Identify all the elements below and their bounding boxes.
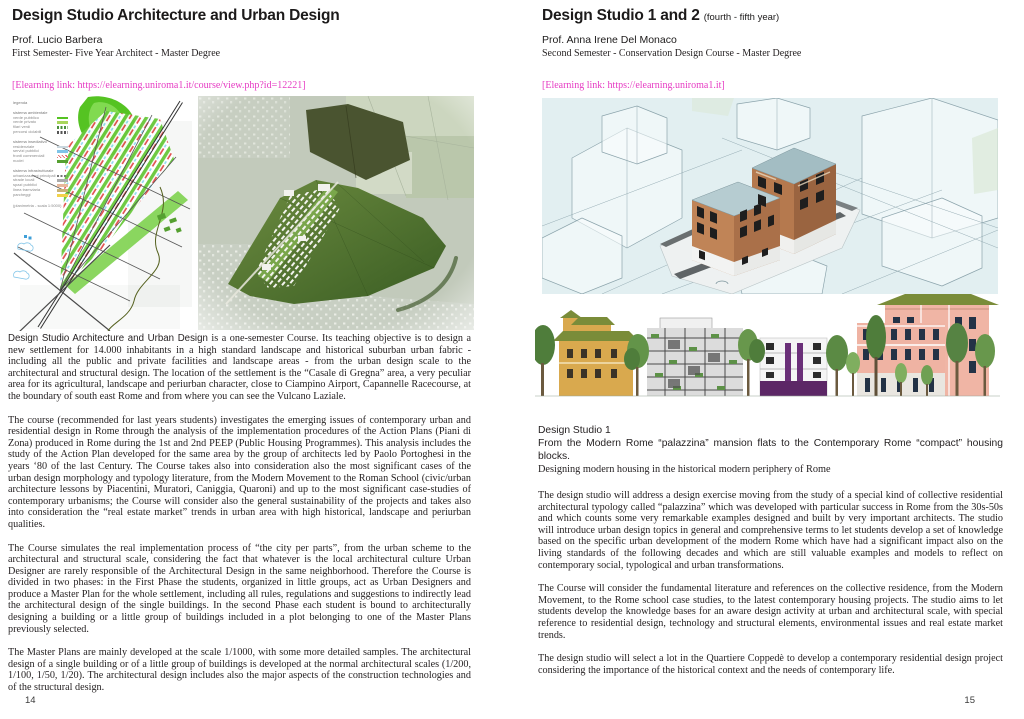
legend-swatch-icon (57, 184, 68, 187)
legend-swatch-icon (57, 175, 68, 178)
legend-swatch-icon (57, 131, 68, 134)
section-subtitle-1: From the Modern Rome “palazzina” mansion… (538, 437, 1003, 463)
street-elevation-strip (535, 293, 1000, 408)
legend-swatch-icon (57, 146, 68, 149)
left-elearning-link[interactable]: [Elearning link: https://elearning.uniro… (12, 80, 306, 91)
left-body-text: Design Studio Architecture and Urban Des… (8, 333, 471, 706)
legend-title: legenda (13, 101, 68, 106)
right-course-title-suffix: (fourth - fifth year) (704, 12, 780, 23)
left-paragraph-1-lead: Design Studio Architecture and Urban Des… (8, 333, 208, 344)
right-paragraph-3: The design studio will select a lot in t… (538, 653, 1003, 676)
right-professor: Prof. Anna Irene Del Monaco (542, 34, 1003, 46)
legend-item-label: percorsi ciclabili (13, 130, 41, 135)
right-body-text: Design Studio 1 From the Modern Rome “pa… (538, 424, 1003, 688)
left-paragraph-3: The Course simulates the real implementa… (8, 543, 471, 636)
left-paragraph-1: Design Studio Architecture and Urban Des… (8, 333, 471, 403)
legend-swatch-icon (57, 121, 68, 124)
legend-item: parcheggi (13, 193, 68, 198)
left-professor: Prof. Lucio Barbera (12, 34, 474, 46)
right-elearning-link[interactable]: [Elearning link: https://elearning.uniro… (542, 80, 725, 91)
right-course-title: Design Studio 1 and 2(fourth - fifth yea… (542, 7, 1003, 25)
right-paragraph-1: The design studio will address a design … (538, 490, 1003, 571)
legend-item-label: nuclei (13, 159, 23, 164)
section-heading: Design Studio 1 (538, 424, 1003, 437)
page-right: Design Studio 1 and 2(fourth - fifth yea… (538, 0, 1003, 719)
right-paragraph-2: The Course will consider the fundamental… (538, 583, 1003, 641)
legend-footer: (planimetria - scala 1:5000) (13, 204, 68, 209)
legend-swatch-icon (57, 194, 68, 197)
legend-swatch-icon (57, 117, 68, 120)
right-page-number: 15 (964, 695, 975, 706)
right-course-info: Second Semester - Conservation Design Co… (542, 48, 1003, 59)
legend-swatch-icon (57, 155, 68, 158)
left-figure-masterplan-aerial: legendasistema ambientaleverde pubblicov… (10, 95, 474, 331)
legend-swatch-icon (57, 189, 68, 192)
right-course-title-main: Design Studio 1 and 2 (542, 7, 700, 24)
page-left: Design Studio Architecture and Urban Des… (8, 0, 474, 719)
left-page-number: 14 (25, 695, 36, 706)
legend-item-label: parcheggi (13, 193, 31, 198)
section-subtitle-2: Designing modern housing in the historic… (538, 463, 1003, 476)
left-course-title: Design Studio Architecture and Urban Des… (12, 7, 474, 25)
masterplan-legend: legendasistema ambientaleverde pubblicov… (13, 101, 68, 208)
aerial-photo (198, 96, 474, 330)
right-figure-elevations (535, 293, 1000, 408)
right-figure-axonometric (542, 98, 998, 294)
left-paragraph-4: The Master Plans are mainly developed at… (8, 647, 471, 693)
left-course-info: First Semester- Five Year Architect - Ma… (12, 48, 474, 59)
legend-swatch-icon (57, 150, 68, 153)
axonometric-drawing (542, 98, 998, 294)
left-paragraph-2: The course (recommended for last years s… (8, 415, 471, 531)
legend-item: nuclei (13, 159, 68, 164)
legend-swatch-icon (57, 126, 68, 129)
legend-swatch-icon (57, 160, 68, 163)
masterplan-panel: legendasistema ambientaleverde pubblicov… (10, 95, 196, 331)
legend-item: percorsi ciclabili (13, 130, 68, 135)
building-modern-gray (647, 318, 743, 396)
aerial-photo-panel (198, 96, 474, 330)
building-white-purple (760, 338, 827, 396)
legend-swatch-icon (57, 179, 68, 182)
